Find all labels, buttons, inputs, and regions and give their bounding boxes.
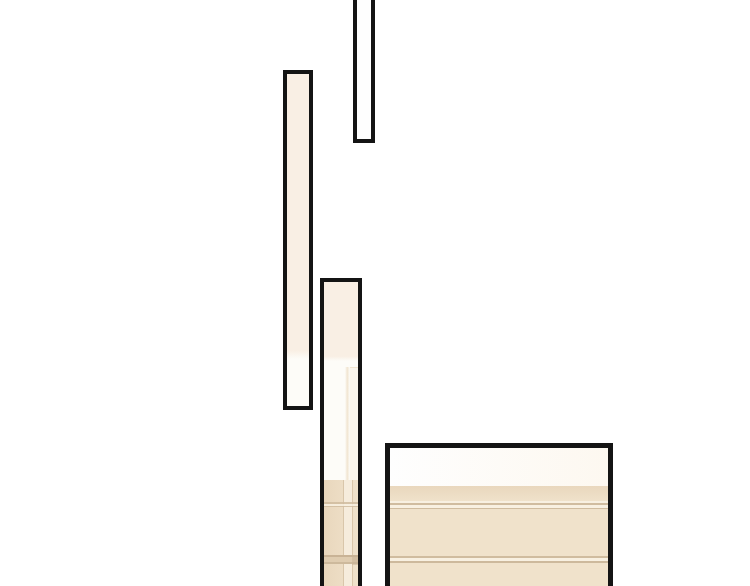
- panel-middle-tall: [320, 278, 362, 586]
- horizontal-trim-line-upper: [390, 501, 608, 509]
- wainscot-beige-section: [390, 486, 608, 586]
- wall-corner-line: [345, 367, 350, 480]
- trim-band-shadow-cell: [352, 555, 358, 565]
- horizontal-trim-line: [324, 502, 358, 507]
- wall-mid-white-section: [324, 361, 358, 480]
- wall-upper-cream-section: [287, 74, 309, 359]
- panel-top-narrow: [353, 0, 375, 143]
- panel-left-tall: [283, 70, 313, 410]
- panel-bottom-wide: [385, 443, 613, 586]
- wall-corner-tint: [350, 367, 358, 480]
- wainscot-beige-section: [324, 480, 358, 586]
- wall-lower-white-section: [287, 359, 309, 406]
- comic-page-background: [0, 0, 750, 586]
- wall-white-band: [390, 448, 608, 486]
- wall-upper-cream-section: [324, 282, 358, 361]
- horizontal-trim-line-lower: [390, 556, 608, 563]
- vertical-highlight-stripe: [343, 480, 353, 586]
